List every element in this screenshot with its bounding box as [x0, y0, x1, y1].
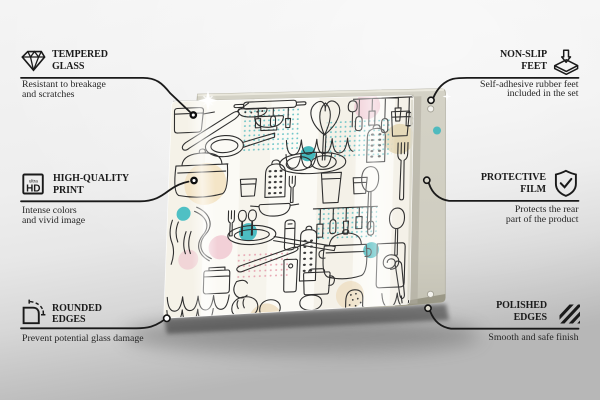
svg-text:ultra: ultra — [29, 178, 38, 183]
svg-text:HD: HD — [26, 184, 40, 195]
